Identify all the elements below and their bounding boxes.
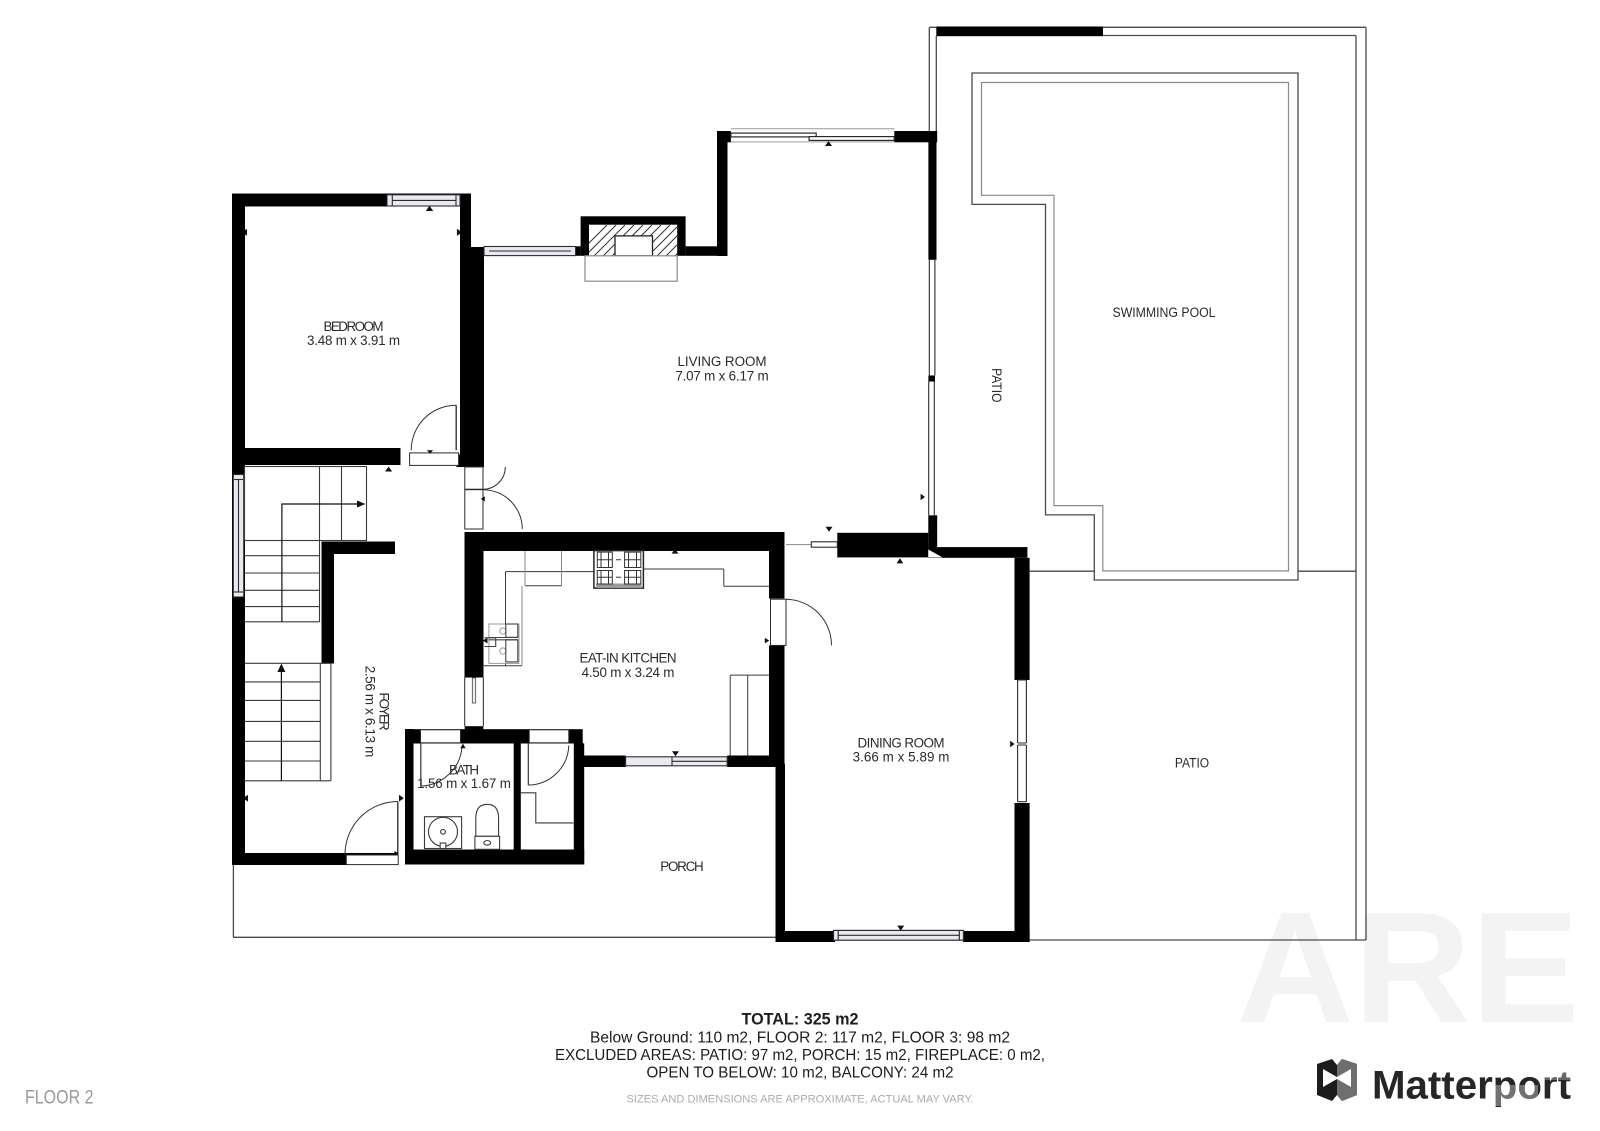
svg-text:EXCLUDED AREAS: PATIO: 97 m2,: EXCLUDED AREAS: PATIO: 97 m2, PORCH: 15 … <box>555 1047 1045 1064</box>
svg-text:PATIO: PATIO <box>989 368 1004 402</box>
svg-text:TOTAL: 325 m2: TOTAL: 325 m2 <box>742 1011 859 1029</box>
svg-text:ARE: ARE <box>1237 880 1580 1056</box>
svg-text:3.66 m x 5.89 m: 3.66 m x 5.89 m <box>853 750 950 765</box>
svg-text:PORCH: PORCH <box>660 859 703 874</box>
svg-text:EAT-IN KITCHEN: EAT-IN KITCHEN <box>580 651 677 666</box>
svg-text:3.48 m x 3.91 m: 3.48 m x 3.91 m <box>307 333 400 348</box>
svg-text:SIZES AND DIMENSIONS ARE APPRO: SIZES AND DIMENSIONS ARE APPROXIMATE, AC… <box>627 1094 974 1106</box>
svg-text:1.56 m x 1.67 m: 1.56 m x 1.67 m <box>417 776 511 791</box>
svg-text:PATIO: PATIO <box>1175 756 1209 771</box>
svg-text:SWIMMING POOL: SWIMMING POOL <box>1113 305 1216 320</box>
svg-text:FOYER: FOYER <box>377 692 392 731</box>
svg-text:DINING ROOM: DINING ROOM <box>858 736 945 751</box>
svg-text:Below Ground: 110 m2, FLOOR 2:: Below Ground: 110 m2, FLOOR 2: 117 m2, F… <box>590 1030 1010 1047</box>
svg-text:BEDROOM: BEDROOM <box>324 319 384 334</box>
svg-text:2.56 m x 6.13 m: 2.56 m x 6.13 m <box>363 666 378 758</box>
svg-text:7.07 m x 6.17 m: 7.07 m x 6.17 m <box>675 369 768 384</box>
svg-text:4.50 m x 3.24 m: 4.50 m x 3.24 m <box>582 665 675 680</box>
svg-text:OPEN TO BELOW: 10 m2, BALCONY:: OPEN TO BELOW: 10 m2, BALCONY: 24 m2 <box>647 1065 954 1082</box>
svg-text:LIVING ROOM: LIVING ROOM <box>678 354 767 369</box>
svg-text:FLOOR 2: FLOOR 2 <box>25 1088 94 1109</box>
